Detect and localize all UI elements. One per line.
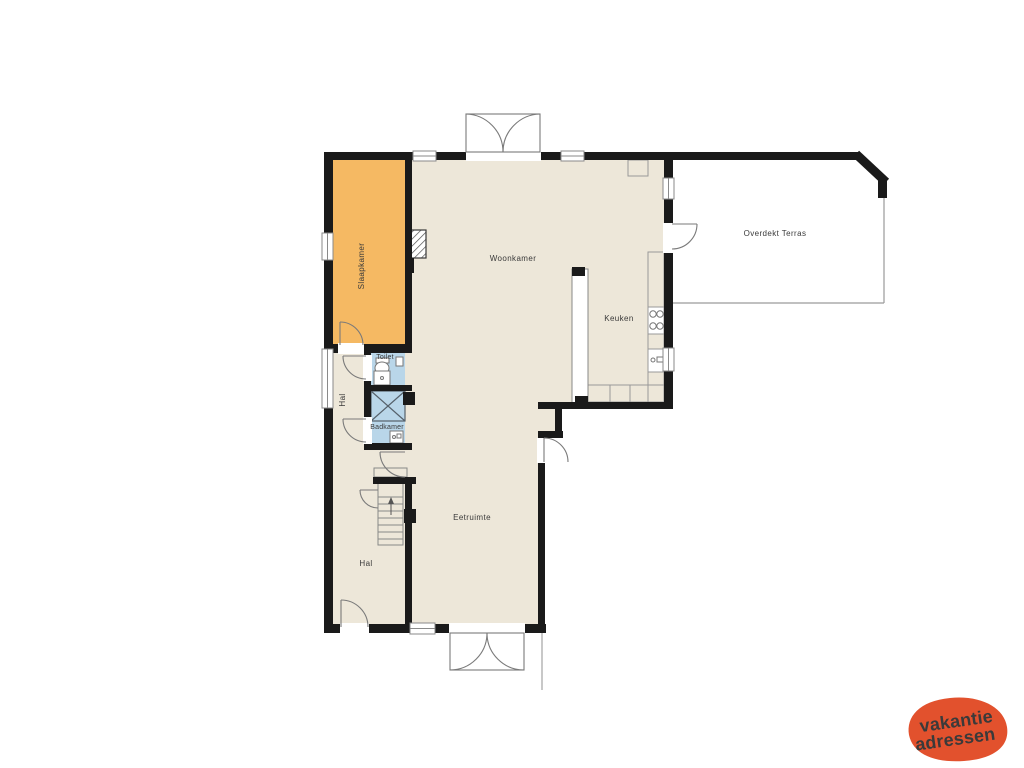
entry-niche-floor <box>538 409 555 431</box>
label-keuken: Keuken <box>604 314 634 323</box>
window-kitchen-lower <box>663 348 674 371</box>
window-top-right <box>561 151 584 161</box>
toilet-sink-icon <box>374 371 390 385</box>
floorplan-canvas: Slaapkamer Woonkamer Keuken Toilet Badka… <box>0 0 1024 768</box>
terrace-corner-wall <box>856 154 886 182</box>
window-hall-left <box>322 349 333 408</box>
kitchen-partition-wall <box>572 267 588 404</box>
door-bottom-double <box>450 633 524 670</box>
stove-icon <box>648 307 664 334</box>
terrace-outline <box>672 197 884 303</box>
window-bottom <box>410 623 435 634</box>
label-eetruimte: Eetruimte <box>453 513 491 522</box>
window-kitchen-upper <box>663 178 674 199</box>
label-hal-boven: Hal <box>338 393 347 406</box>
label-slaapkamer: Slaapkamer <box>357 243 366 290</box>
slaapkamer-floor <box>332 160 405 346</box>
badkamer-sink-icon <box>390 431 403 443</box>
door-eetruimte-buiten <box>544 438 568 462</box>
vakantieadressen-logo: vakantie adressen <box>909 698 1008 762</box>
door-terras <box>672 224 697 249</box>
label-woonkamer: Woonkamer <box>490 254 537 263</box>
door-top-double <box>466 114 540 152</box>
label-hal-beneden: Hal <box>359 559 372 568</box>
label-badkamer: Badkamer <box>370 424 404 431</box>
label-terras: Overdekt Terras <box>744 229 807 238</box>
label-toilet: Toilet <box>376 354 394 361</box>
window-top-left <box>413 151 436 161</box>
window-bedroom-left <box>322 233 333 260</box>
kitchen-sink-icon <box>648 349 664 372</box>
floors <box>332 160 664 624</box>
